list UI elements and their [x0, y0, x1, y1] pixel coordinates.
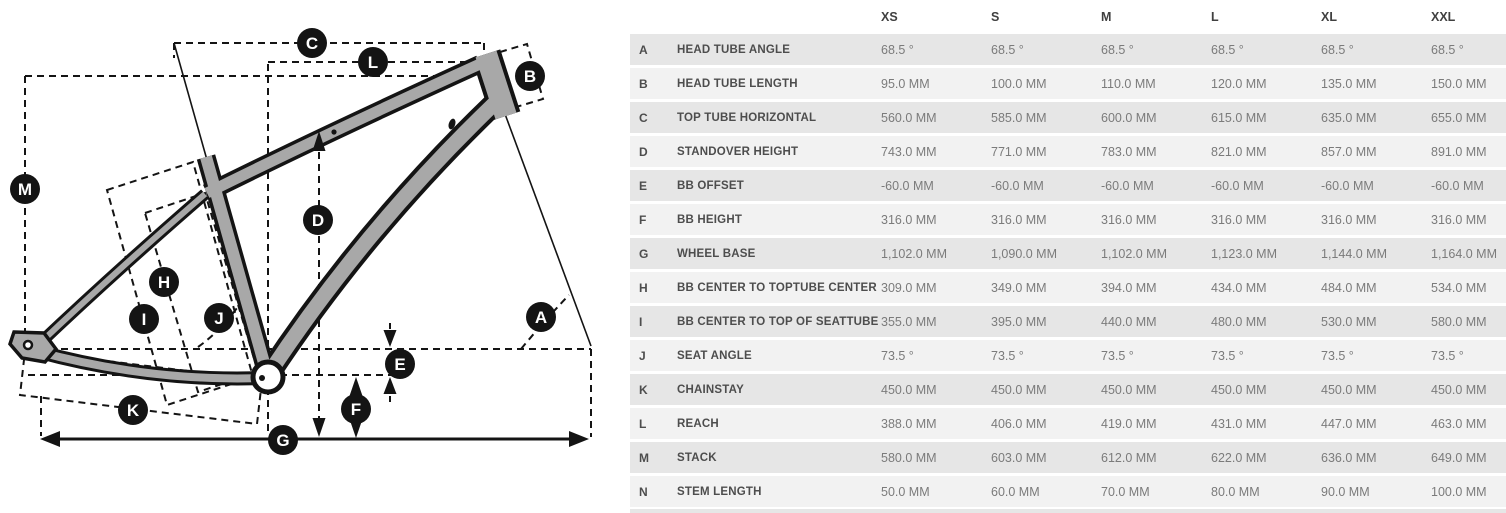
- cell-value: 395.0 MM: [991, 315, 1101, 329]
- table-row: HBB CENTER TO TOPTUBE CENTER309.0 MM349.…: [630, 272, 1506, 303]
- row-letter: E: [630, 179, 677, 193]
- cell-value: 316.0 MM: [1431, 213, 1506, 227]
- cell-value: 450.0 MM: [1211, 383, 1321, 397]
- cell-value: 857.0 MM: [1321, 145, 1431, 159]
- cell-value: 655.0 MM: [1431, 111, 1506, 125]
- row-letter: M: [630, 451, 677, 465]
- table-header: XS S M L XL XXL: [630, 0, 1506, 34]
- table-row: AHEAD TUBE ANGLE68.5 °68.5 °68.5 °68.5 °…: [630, 34, 1506, 65]
- marker-letter: B: [524, 67, 536, 86]
- table-row: LREACH388.0 MM406.0 MM419.0 MM431.0 MM44…: [630, 408, 1506, 439]
- cell-value: 534.0 MM: [1431, 281, 1506, 295]
- column-header-xxl: XXL: [1431, 10, 1506, 24]
- cell-value: 891.0 MM: [1431, 145, 1506, 159]
- cell-value: 394.0 MM: [1101, 281, 1211, 295]
- row-letter: N: [630, 485, 677, 499]
- cell-value: 580.0 MM: [1431, 315, 1506, 329]
- row-name: TOP TUBE HORIZONTAL: [677, 112, 881, 124]
- marker-letter: C: [306, 34, 318, 53]
- row-letter: D: [630, 145, 677, 159]
- cell-value: 447.0 MM: [1321, 417, 1431, 431]
- column-header-xl: XL: [1321, 10, 1431, 24]
- cell-value: 309.0 MM: [881, 281, 991, 295]
- marker-letter: E: [394, 355, 405, 374]
- row-letter: K: [630, 383, 677, 397]
- table-partial-row: [630, 509, 1506, 513]
- row-letter: F: [630, 213, 677, 227]
- row-letter: L: [630, 417, 677, 431]
- row-name: HEAD TUBE ANGLE: [677, 44, 881, 56]
- table-row: IBB CENTER TO TOP OF SEATTUBE355.0 MM395…: [630, 306, 1506, 337]
- cell-value: 580.0 MM: [881, 451, 991, 465]
- cell-value: 612.0 MM: [1101, 451, 1211, 465]
- table-row: NSTEM LENGTH50.0 MM60.0 MM70.0 MM80.0 MM…: [630, 476, 1506, 507]
- cell-value: 150.0 MM: [1431, 77, 1506, 91]
- cell-value: 530.0 MM: [1321, 315, 1431, 329]
- cell-value: 68.5 °: [1211, 43, 1321, 57]
- column-header-xs: XS: [881, 10, 991, 24]
- cell-value: 80.0 MM: [1211, 485, 1321, 499]
- cell-value: 73.5 °: [1431, 349, 1506, 363]
- row-name: WHEEL BASE: [677, 248, 881, 260]
- cell-value: 480.0 MM: [1211, 315, 1321, 329]
- cell-value: 73.5 °: [1321, 349, 1431, 363]
- cell-value: 603.0 MM: [991, 451, 1101, 465]
- row-letter: C: [630, 111, 677, 125]
- cell-value: 1,164.0 MM: [1431, 247, 1506, 261]
- table-row: DSTANDOVER HEIGHT743.0 MM771.0 MM783.0 M…: [630, 136, 1506, 167]
- cell-value: 1,090.0 MM: [991, 247, 1101, 261]
- bottom-bracket: [253, 362, 283, 392]
- cell-value: 463.0 MM: [1431, 417, 1506, 431]
- cell-value: -60.0 MM: [1101, 179, 1211, 193]
- cell-value: -60.0 MM: [1211, 179, 1321, 193]
- cell-value: 68.5 °: [881, 43, 991, 57]
- row-name: STACK: [677, 452, 881, 464]
- cell-value: 316.0 MM: [1211, 213, 1321, 227]
- cell-value: 68.5 °: [1321, 43, 1431, 57]
- cell-value: 1,123.0 MM: [1211, 247, 1321, 261]
- cell-value: 110.0 MM: [1101, 77, 1211, 91]
- table-row: EBB OFFSET-60.0 MM-60.0 MM-60.0 MM-60.0 …: [630, 170, 1506, 201]
- frame-geometry-diagram: ABCDEFGHIJKLM: [0, 0, 630, 513]
- row-name: REACH: [677, 418, 881, 430]
- cell-value: 1,144.0 MM: [1321, 247, 1431, 261]
- cell-value: 316.0 MM: [881, 213, 991, 227]
- cell-value: 316.0 MM: [1101, 213, 1211, 227]
- row-letter: J: [630, 349, 677, 363]
- cell-value: 70.0 MM: [1101, 485, 1211, 499]
- cell-value: -60.0 MM: [1431, 179, 1506, 193]
- cell-value: 615.0 MM: [1211, 111, 1321, 125]
- cell-value: 388.0 MM: [881, 417, 991, 431]
- row-name: BB OFFSET: [677, 180, 881, 192]
- marker-letter: J: [214, 309, 223, 328]
- marker-letter: A: [535, 308, 547, 327]
- cell-value: 484.0 MM: [1321, 281, 1431, 295]
- cell-value: 68.5 °: [1431, 43, 1506, 57]
- geometry-table: XS S M L XL XXL AHEAD TUBE ANGLE68.5 °68…: [630, 0, 1506, 513]
- row-letter: H: [630, 281, 677, 295]
- row-letter: B: [630, 77, 677, 91]
- marker-letter: H: [158, 273, 170, 292]
- cell-value: 68.5 °: [991, 43, 1101, 57]
- row-name: SEAT ANGLE: [677, 350, 881, 362]
- table-row: GWHEEL BASE1,102.0 MM1,090.0 MM1,102.0 M…: [630, 238, 1506, 269]
- row-name: STANDOVER HEIGHT: [677, 146, 881, 158]
- cell-value: 1,102.0 MM: [881, 247, 991, 261]
- row-letter: I: [630, 315, 677, 329]
- column-header-s: S: [991, 10, 1101, 24]
- table-row: BHEAD TUBE LENGTH95.0 MM100.0 MM110.0 MM…: [630, 68, 1506, 99]
- cell-value: 316.0 MM: [1321, 213, 1431, 227]
- cell-value: 73.5 °: [991, 349, 1101, 363]
- marker-letter: D: [312, 211, 324, 230]
- cell-value: 450.0 MM: [1431, 383, 1506, 397]
- row-letter: A: [630, 43, 677, 57]
- cell-value: 771.0 MM: [991, 145, 1101, 159]
- cell-value: 419.0 MM: [1101, 417, 1211, 431]
- row-letter: G: [630, 247, 677, 261]
- marker-letter: L: [368, 53, 378, 72]
- cell-value: 73.5 °: [881, 349, 991, 363]
- cell-value: 434.0 MM: [1211, 281, 1321, 295]
- marker-letter: M: [18, 180, 32, 199]
- row-name: HEAD TUBE LENGTH: [677, 78, 881, 90]
- row-name: CHAINSTAY: [677, 384, 881, 396]
- cell-value: 600.0 MM: [1101, 111, 1211, 125]
- cell-value: -60.0 MM: [991, 179, 1101, 193]
- cell-value: 440.0 MM: [1101, 315, 1211, 329]
- cell-value: 585.0 MM: [991, 111, 1101, 125]
- marker-letter: F: [351, 400, 361, 419]
- cell-value: 406.0 MM: [991, 417, 1101, 431]
- table-row: MSTACK580.0 MM603.0 MM612.0 MM622.0 MM63…: [630, 442, 1506, 473]
- cell-value: -60.0 MM: [1321, 179, 1431, 193]
- column-header-l: L: [1211, 10, 1321, 24]
- cell-value: 120.0 MM: [1211, 77, 1321, 91]
- cell-value: 355.0 MM: [881, 315, 991, 329]
- cell-value: 135.0 MM: [1321, 77, 1431, 91]
- row-name: BB CENTER TO TOP OF SEATTUBE: [677, 316, 881, 328]
- row-name: BB CENTER TO TOPTUBE CENTER: [677, 282, 881, 294]
- cell-value: 743.0 MM: [881, 145, 991, 159]
- cell-value: 73.5 °: [1101, 349, 1211, 363]
- row-name: BB HEIGHT: [677, 214, 881, 226]
- bike-geometry-page: ABCDEFGHIJKLM XS S M L XL XXL AHEAD TUBE…: [0, 0, 1506, 513]
- table-body: AHEAD TUBE ANGLE68.5 °68.5 °68.5 °68.5 °…: [630, 34, 1506, 507]
- cell-value: 450.0 MM: [881, 383, 991, 397]
- marker-letter: G: [276, 431, 289, 450]
- table-row: FBB HEIGHT316.0 MM316.0 MM316.0 MM316.0 …: [630, 204, 1506, 235]
- cell-value: 431.0 MM: [1211, 417, 1321, 431]
- cell-value: 450.0 MM: [991, 383, 1101, 397]
- table-row: JSEAT ANGLE73.5 °73.5 °73.5 °73.5 °73.5 …: [630, 340, 1506, 371]
- cell-value: 316.0 MM: [991, 213, 1101, 227]
- marker-letter: I: [142, 310, 147, 329]
- cell-value: 349.0 MM: [991, 281, 1101, 295]
- cell-value: 622.0 MM: [1211, 451, 1321, 465]
- cell-value: 90.0 MM: [1321, 485, 1431, 499]
- cell-value: 73.5 °: [1211, 349, 1321, 363]
- cell-value: 635.0 MM: [1321, 111, 1431, 125]
- cell-value: 649.0 MM: [1431, 451, 1506, 465]
- column-header-m: M: [1101, 10, 1211, 24]
- cell-value: 100.0 MM: [991, 77, 1101, 91]
- cell-value: 450.0 MM: [1321, 383, 1431, 397]
- cell-value: 636.0 MM: [1321, 451, 1431, 465]
- table-row: CTOP TUBE HORIZONTAL560.0 MM585.0 MM600.…: [630, 102, 1506, 133]
- cell-value: 60.0 MM: [991, 485, 1101, 499]
- cell-value: 50.0 MM: [881, 485, 991, 499]
- frame-drawing: [10, 54, 506, 392]
- cell-value: 821.0 MM: [1211, 145, 1321, 159]
- cell-value: 1,102.0 MM: [1101, 247, 1211, 261]
- cell-value: 100.0 MM: [1431, 485, 1506, 499]
- dimension-markers: ABCDEFGHIJKLM: [10, 28, 556, 455]
- marker-letter: K: [127, 401, 140, 420]
- cell-value: 783.0 MM: [1101, 145, 1211, 159]
- row-name: STEM LENGTH: [677, 486, 881, 498]
- cell-value: 95.0 MM: [881, 77, 991, 91]
- cell-value: -60.0 MM: [881, 179, 991, 193]
- cell-value: 68.5 °: [1101, 43, 1211, 57]
- table-row: KCHAINSTAY450.0 MM450.0 MM450.0 MM450.0 …: [630, 374, 1506, 405]
- cell-value: 560.0 MM: [881, 111, 991, 125]
- cell-value: 450.0 MM: [1101, 383, 1211, 397]
